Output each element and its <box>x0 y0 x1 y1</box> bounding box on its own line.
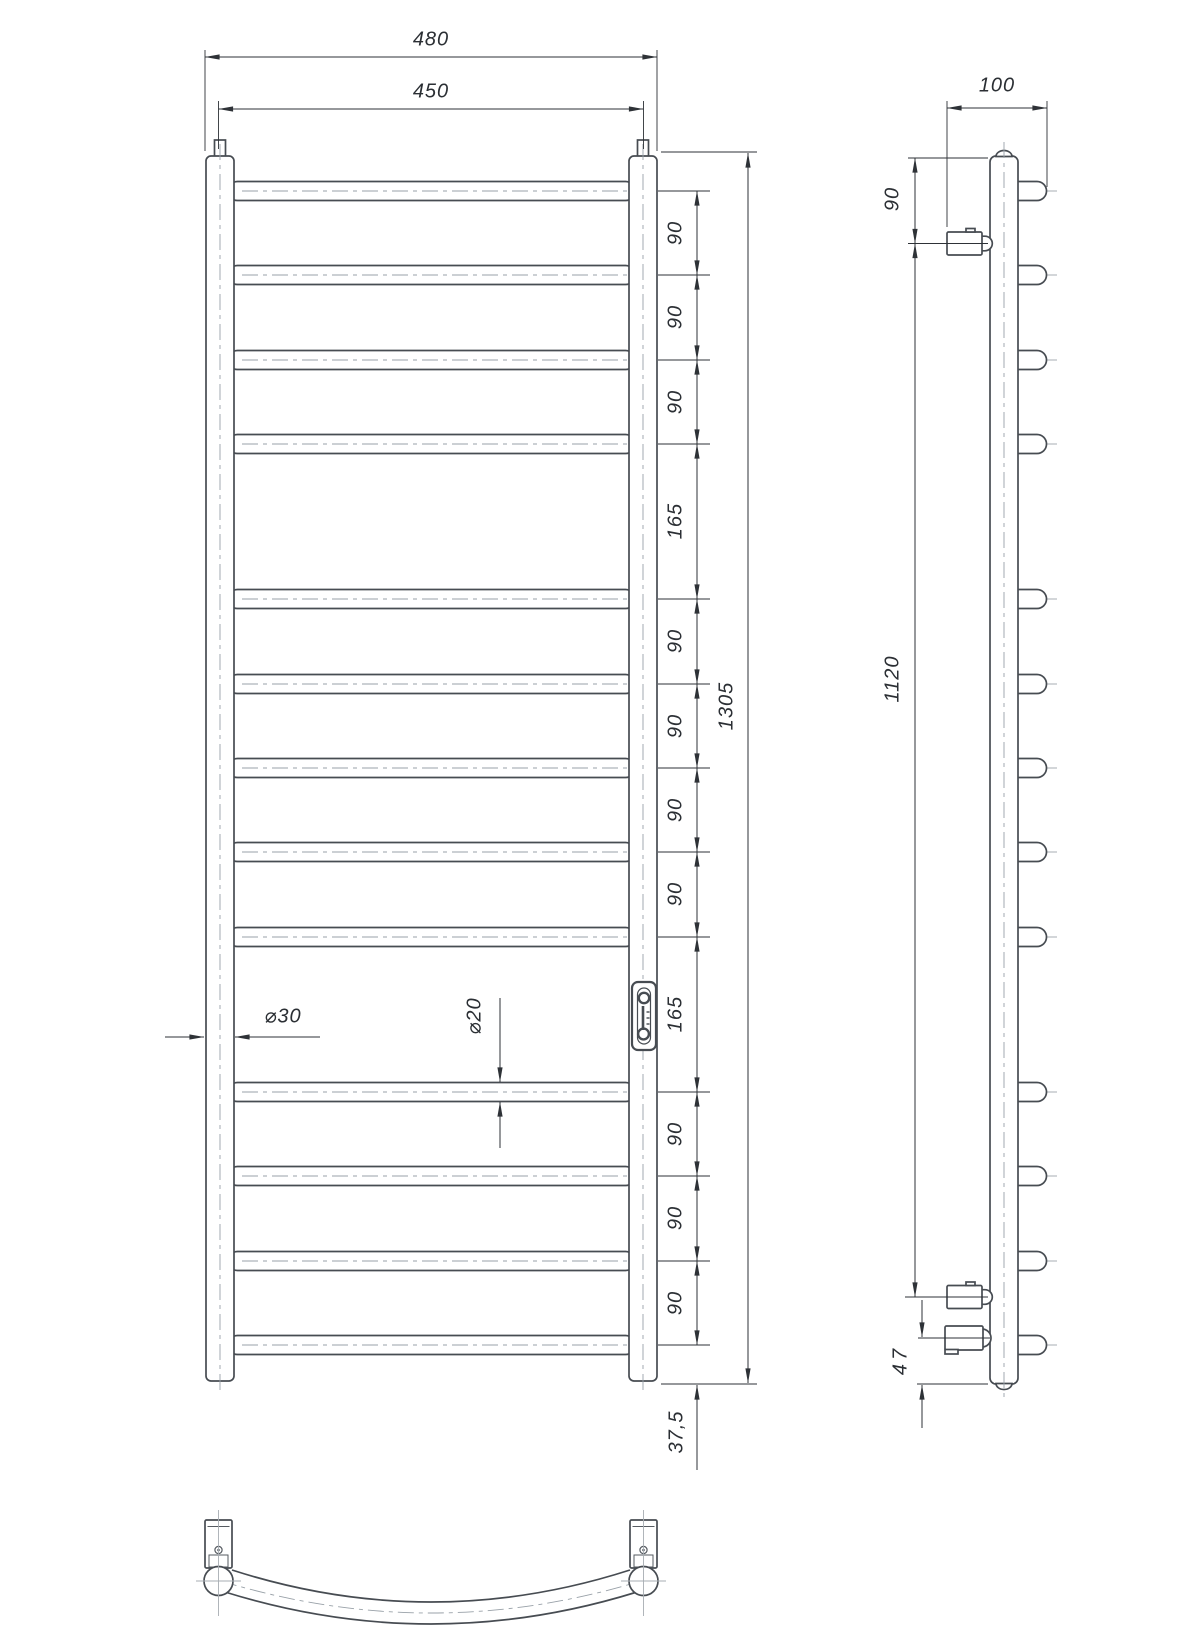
dim-rung-diameter: ⌀20 <box>462 997 487 1034</box>
curved-rung-bottom-edge <box>225 1592 637 1624</box>
dim-top-bracket-offset: 90 <box>882 187 905 211</box>
dim-bracket-distance: 1120 <box>882 655 905 702</box>
dim-collector-diameter: ⌀30 <box>264 1004 301 1029</box>
dim-spacing-10: 90 <box>665 1122 688 1146</box>
wall-bracket-top <box>947 229 992 256</box>
dim-spacing-4: 165 <box>665 503 688 539</box>
bottom-view-right-mount <box>621 1510 666 1616</box>
dim-spacing-3: 90 <box>665 390 688 414</box>
bottom-view-left-mount <box>196 1510 241 1616</box>
dim-spacing-5: 90 <box>665 629 688 653</box>
dim-spacing-7: 90 <box>665 798 688 822</box>
dim-spacing-2: 90 <box>665 305 688 329</box>
side-view <box>945 142 1057 1398</box>
curved-rung-top-edge <box>232 1570 630 1602</box>
thermometer-badge-icon <box>632 982 656 1050</box>
dim-spacing-9: 165 <box>665 996 688 1032</box>
bottom-view <box>196 1510 666 1624</box>
dim-spacing-8: 90 <box>665 882 688 906</box>
front-view <box>206 140 657 1394</box>
drawing-geometry <box>0 0 1200 1651</box>
dim-axis-width: 450 <box>413 81 449 104</box>
dim-spacing-12: 90 <box>665 1291 688 1315</box>
technical-drawing-towel-rail: 480 450 90 90 90 165 90 90 90 90 165 90 … <box>0 0 1200 1651</box>
bottom-connection-element <box>945 1326 991 1354</box>
dim-overall-height: 1305 <box>716 682 739 731</box>
dim-overall-width: 480 <box>413 29 449 52</box>
rung-stubs <box>1016 182 1047 1355</box>
wall-bracket-bottom <box>947 1282 992 1309</box>
dim-spacing-11: 90 <box>665 1206 688 1230</box>
dim-bottom-connection-offset: 47 <box>890 1345 913 1375</box>
dim-spacing-1: 90 <box>665 221 688 245</box>
dim-bottom-offset: 37,5 <box>666 1411 689 1454</box>
dim-depth: 100 <box>979 75 1015 98</box>
dim-spacing-6: 90 <box>665 714 688 738</box>
